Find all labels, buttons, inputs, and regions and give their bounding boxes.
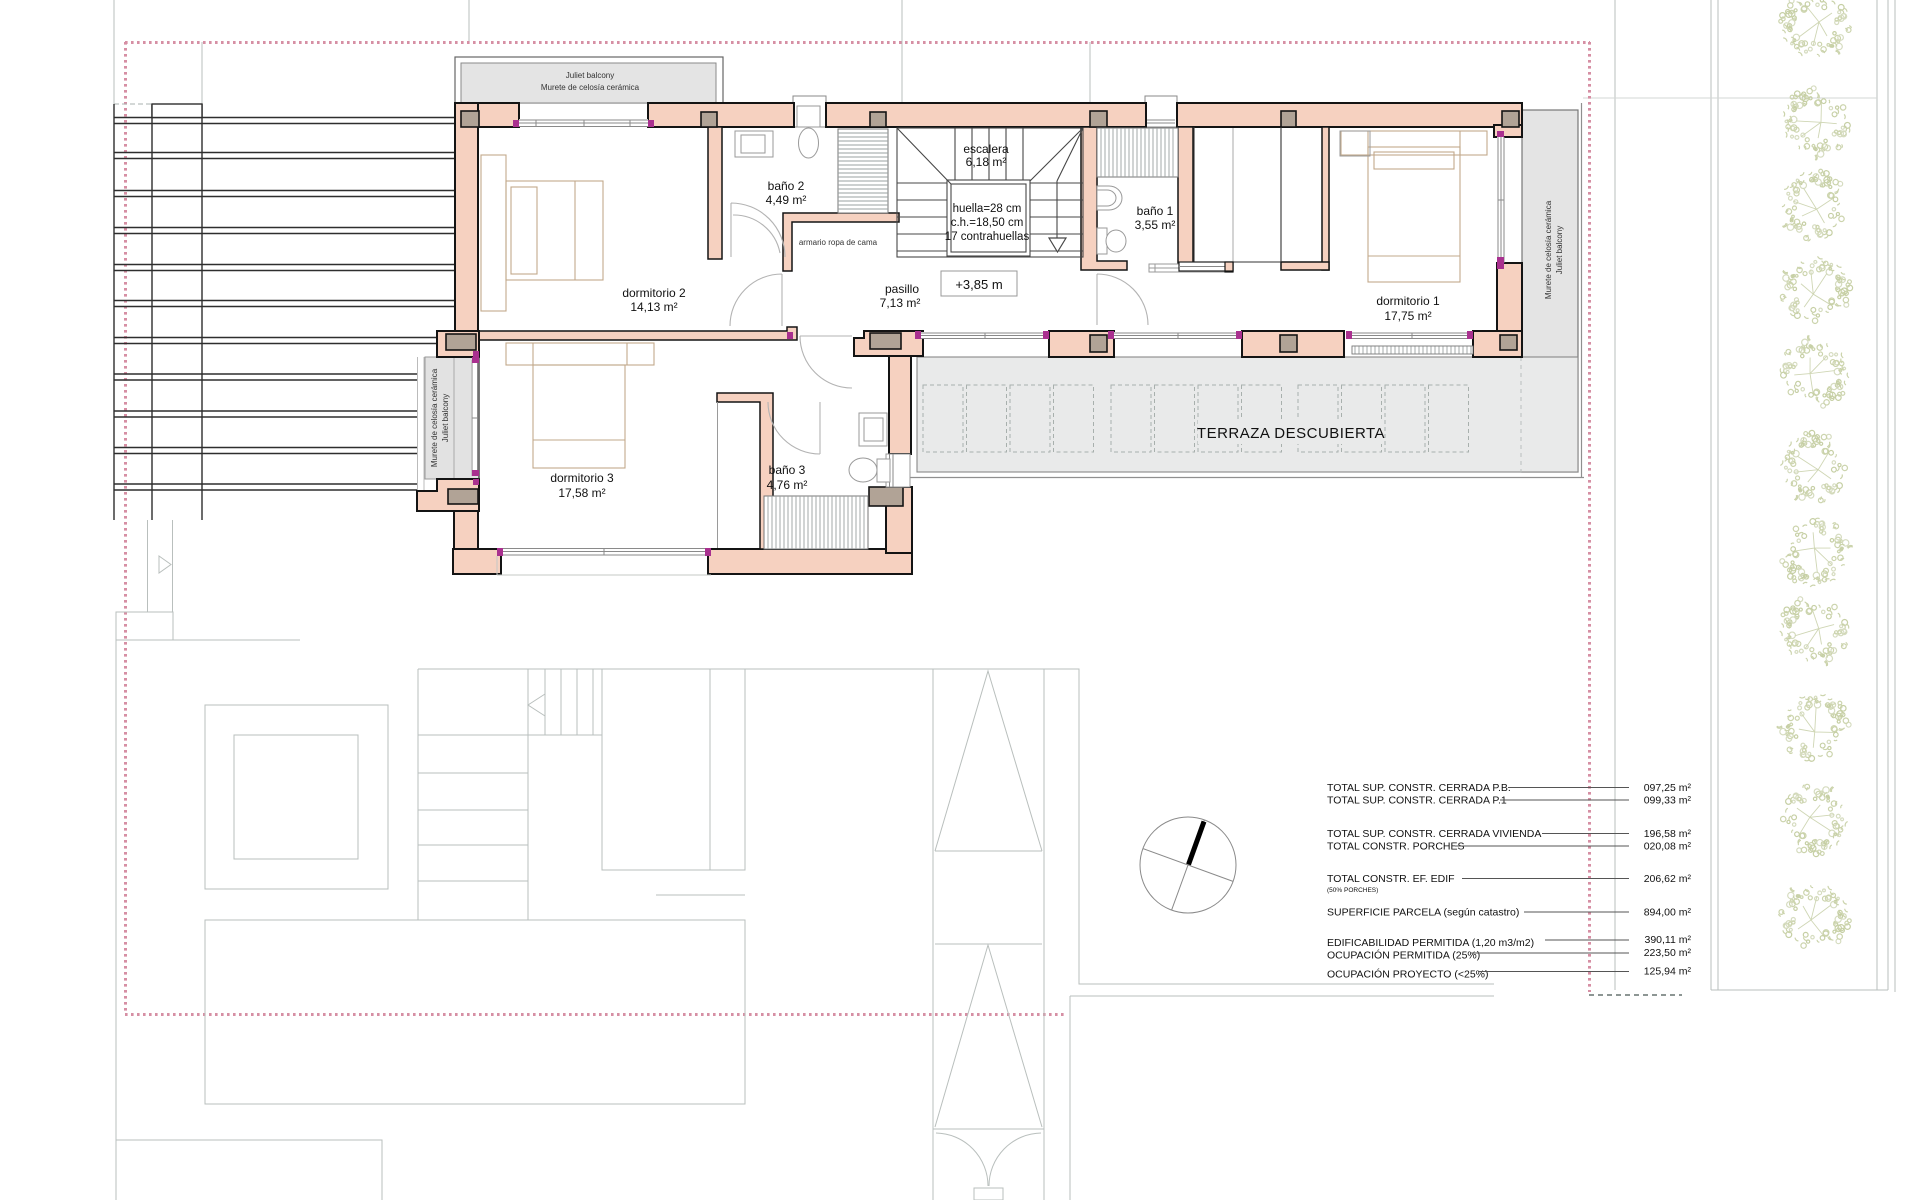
svg-text:6,18 m²: 6,18 m² — [966, 155, 1007, 169]
svg-text:baño 1: baño 1 — [1137, 204, 1174, 218]
svg-text:020,08 m²: 020,08 m² — [1644, 841, 1692, 853]
svg-text:SUPERFICIE PARCELA (según cata: SUPERFICIE PARCELA (según catastro) — [1327, 907, 1519, 919]
svg-text:baño 2: baño 2 — [768, 179, 805, 193]
svg-text:17,58 m²: 17,58 m² — [558, 486, 605, 500]
svg-text:4,49 m²: 4,49 m² — [766, 193, 807, 207]
svg-text:+3,85 m: +3,85 m — [955, 277, 1002, 292]
svg-text:TERRAZA DESCUBIERTA: TERRAZA DESCUBIERTA — [1197, 425, 1385, 442]
svg-text:390,11 m²: 390,11 m² — [1645, 934, 1692, 946]
svg-text:TOTAL CONSTR. EF. EDIF: TOTAL CONSTR. EF. EDIF — [1327, 873, 1455, 885]
svg-text:Murete de celosía cerámica: Murete de celosía cerámica — [430, 368, 439, 467]
svg-text:Murete de celosía cerámica: Murete de celosía cerámica — [1544, 200, 1553, 299]
svg-text:c.h.=18,50 cm: c.h.=18,50 cm — [951, 217, 1024, 229]
svg-text:Juliet balcony: Juliet balcony — [566, 71, 614, 80]
svg-text:pasillo: pasillo — [885, 282, 919, 296]
svg-text:Juliet balcony: Juliet balcony — [441, 394, 450, 442]
svg-text:7,13 m²: 7,13 m² — [880, 296, 921, 310]
svg-text:TOTAL SUP. CONSTR. CERRADA P.1: TOTAL SUP. CONSTR. CERRADA P.1 — [1327, 795, 1507, 807]
svg-text:TOTAL SUP. CONSTR. CERRADA VIV: TOTAL SUP. CONSTR. CERRADA VIVIENDA — [1327, 828, 1541, 840]
svg-text:dormitorio 1: dormitorio 1 — [1376, 294, 1440, 308]
svg-text:4,76 m²: 4,76 m² — [767, 478, 808, 492]
svg-text:dormitorio 3: dormitorio 3 — [550, 471, 614, 485]
svg-text:17,75 m²: 17,75 m² — [1384, 309, 1431, 323]
svg-text:097,25 m²: 097,25 m² — [1644, 782, 1692, 794]
svg-text:894,00 m²: 894,00 m² — [1644, 907, 1692, 919]
svg-text:125,94 m²: 125,94 m² — [1644, 966, 1692, 978]
svg-text:OCUPACIÓN PROYECTO (<25%): OCUPACIÓN PROYECTO (<25%) — [1327, 968, 1489, 981]
svg-text:baño 3: baño 3 — [769, 463, 806, 477]
svg-text:Murete de celosía cerámica: Murete de celosía cerámica — [541, 83, 640, 92]
svg-text:dormitorio 2: dormitorio 2 — [622, 286, 686, 300]
svg-text:armario ropa de cama: armario ropa de cama — [799, 238, 878, 247]
svg-text:223,50 m²: 223,50 m² — [1644, 947, 1692, 959]
svg-text:Juliet balcony: Juliet balcony — [1555, 226, 1564, 274]
svg-text:17 contrahuellas: 17 contrahuellas — [945, 231, 1030, 243]
svg-text:206,62 m²: 206,62 m² — [1644, 873, 1692, 885]
svg-text:TOTAL SUP. CONSTR. CERRADA P.B: TOTAL SUP. CONSTR. CERRADA P.B. — [1327, 782, 1511, 794]
svg-text:14,13 m²: 14,13 m² — [630, 300, 677, 314]
svg-text:3,55 m²: 3,55 m² — [1135, 218, 1176, 232]
svg-text:196,58 m²: 196,58 m² — [1644, 828, 1692, 840]
svg-text:099,33 m²: 099,33 m² — [1644, 795, 1692, 807]
svg-text:huella=28 cm: huella=28 cm — [953, 203, 1022, 215]
svg-text:TOTAL CONSTR. PORCHES: TOTAL CONSTR. PORCHES — [1327, 841, 1465, 853]
svg-text:EDIFICABILIDAD PERMITIDA (1,20: EDIFICABILIDAD PERMITIDA (1,20 m3/m2) — [1327, 937, 1534, 949]
svg-text:escalera: escalera — [963, 142, 1009, 156]
svg-text:OCUPACIÓN PERMITIDA (25%): OCUPACIÓN PERMITIDA (25%) — [1327, 949, 1480, 962]
svg-text:(50% PORCHES): (50% PORCHES) — [1327, 887, 1378, 894]
